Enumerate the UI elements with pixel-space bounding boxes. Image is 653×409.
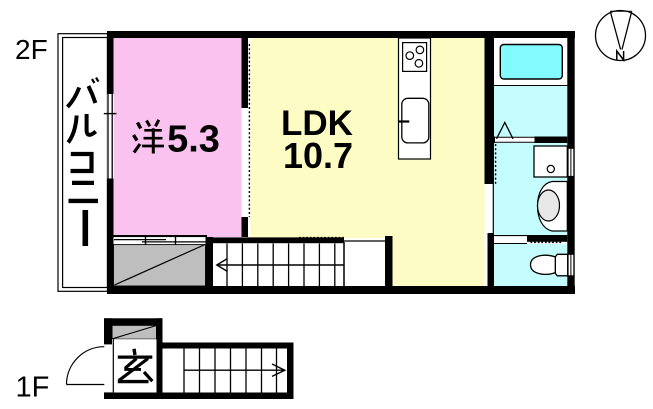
svg-text:1F: 1F — [16, 372, 50, 404]
svg-text:10.7: 10.7 — [283, 135, 353, 176]
svg-text:2F: 2F — [15, 34, 48, 65]
svg-text:5.3: 5.3 — [167, 119, 220, 161]
